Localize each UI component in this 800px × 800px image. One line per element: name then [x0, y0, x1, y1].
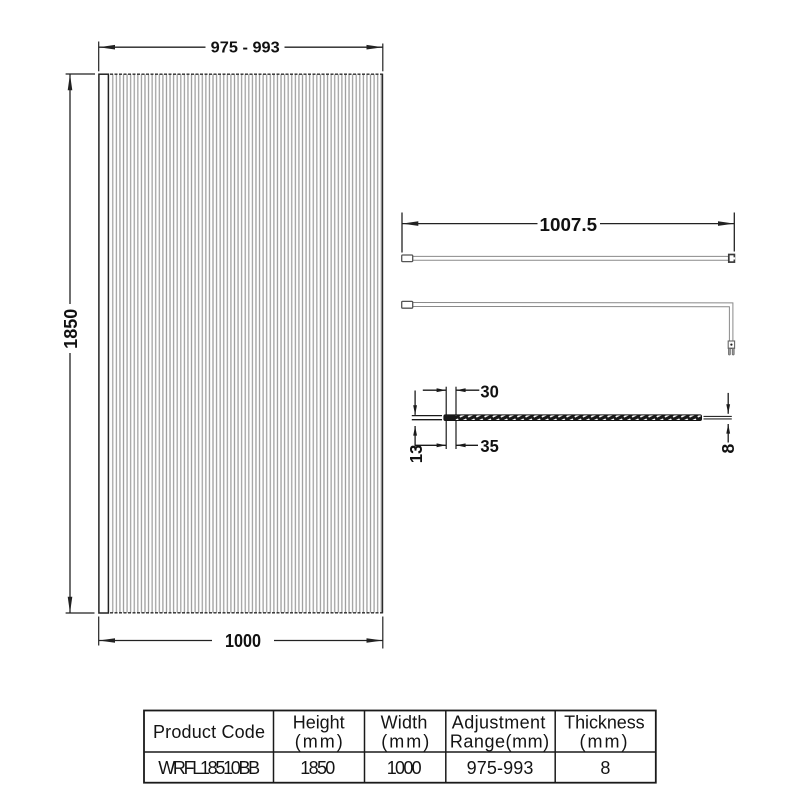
svg-text:Thickness: Thickness	[564, 712, 645, 732]
svg-text:35: 35	[480, 436, 499, 456]
svg-text:1000: 1000	[387, 758, 422, 778]
svg-text:1007.5: 1007.5	[540, 214, 598, 235]
svg-text:1850: 1850	[300, 758, 335, 778]
svg-text:30: 30	[480, 381, 499, 401]
svg-text:8: 8	[600, 758, 610, 778]
svg-text:1000: 1000	[225, 630, 261, 651]
svg-text:13: 13	[406, 444, 426, 463]
svg-text:8: 8	[718, 444, 738, 454]
svg-text:Width: Width	[381, 712, 428, 732]
svg-text:Range(mm): Range(mm)	[450, 731, 549, 751]
svg-text:975 - 993: 975 - 993	[211, 39, 280, 56]
svg-text:1850: 1850	[61, 309, 81, 349]
svg-text:Adjustment: Adjustment	[452, 712, 546, 732]
svg-text:975-993: 975-993	[467, 758, 534, 778]
svg-text:WRFL18510BB: WRFL18510BB	[158, 758, 260, 778]
svg-text:Product Code: Product Code	[153, 722, 265, 742]
svg-text:Height: Height	[293, 712, 345, 732]
